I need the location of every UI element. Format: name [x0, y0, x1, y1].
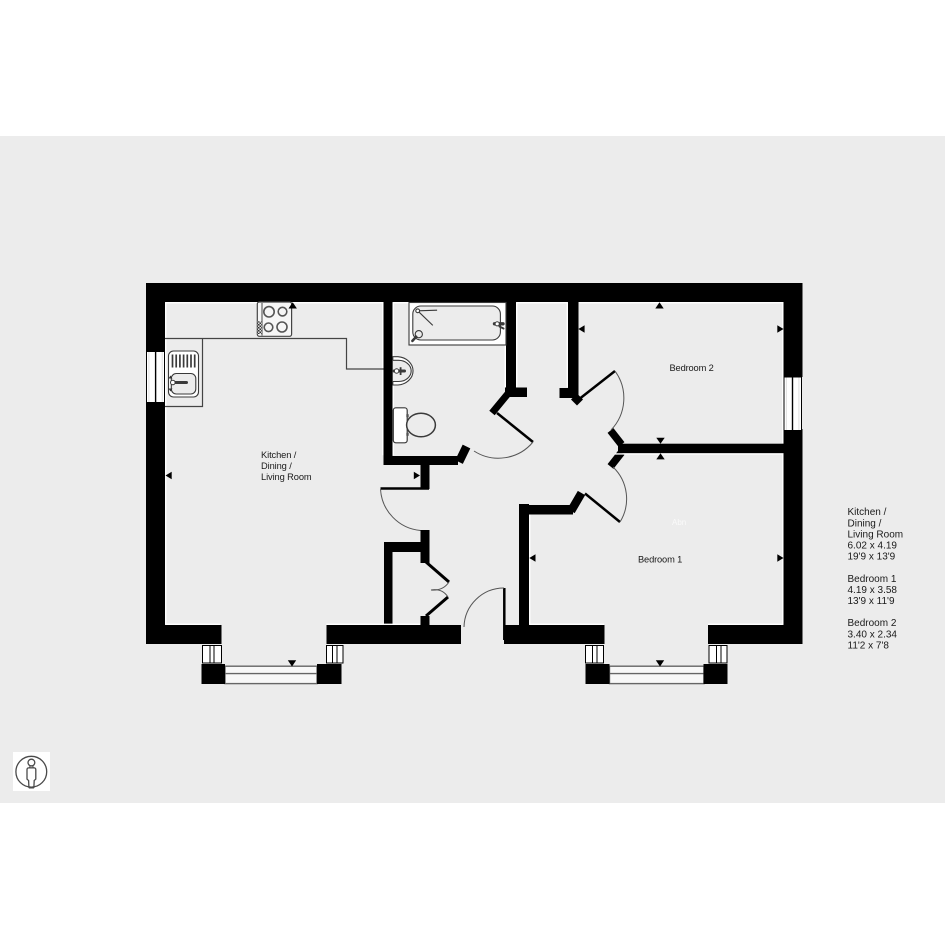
svg-text:Living Room: Living Room	[848, 529, 904, 540]
svg-text:6.02 x 4.19: 6.02 x 4.19	[848, 541, 898, 552]
svg-text:Dining /: Dining /	[261, 461, 292, 471]
svg-text:Bedroom 1: Bedroom 1	[848, 574, 897, 585]
svg-text:13'9 x 11'9: 13'9 x 11'9	[848, 596, 895, 607]
svg-text:Kitchen /: Kitchen /	[848, 507, 887, 518]
svg-text:3.40 x 2.34: 3.40 x 2.34	[848, 629, 898, 640]
svg-text:11'2 x 7'8: 11'2 x 7'8	[848, 640, 890, 651]
svg-text:Bedroom 2: Bedroom 2	[670, 363, 714, 373]
svg-text:19'9 x 13'9: 19'9 x 13'9	[848, 552, 896, 563]
svg-text:4.19 x 3.58: 4.19 x 3.58	[848, 585, 898, 596]
svg-text:Bedroom 2: Bedroom 2	[848, 618, 897, 629]
svg-text:Bedroom 1: Bedroom 1	[638, 555, 682, 565]
svg-text:Kitchen /: Kitchen /	[261, 450, 297, 460]
svg-text:Abn: Abn	[672, 518, 686, 527]
svg-text:Dining /: Dining /	[848, 518, 882, 529]
svg-text:Living Room: Living Room	[261, 472, 312, 482]
